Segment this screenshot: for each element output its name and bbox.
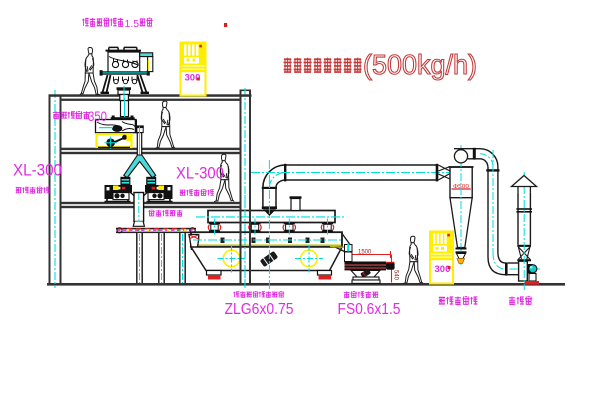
svg-text:(500kg/h): (500kg/h) bbox=[363, 49, 477, 80]
svg-text:540: 540 bbox=[393, 270, 399, 281]
svg-text:1.5: 1.5 bbox=[125, 18, 140, 30]
svg-text:FS0.6x1.5: FS0.6x1.5 bbox=[338, 301, 401, 318]
svg-text:ZLG6x0.75: ZLG6x0.75 bbox=[225, 301, 294, 318]
svg-text:XL-300: XL-300 bbox=[13, 162, 62, 180]
svg-text:XL-300: XL-300 bbox=[176, 165, 224, 183]
svg-text:1500: 1500 bbox=[358, 250, 372, 256]
svg-text:300: 300 bbox=[435, 264, 451, 275]
svg-text:350: 350 bbox=[88, 109, 107, 124]
